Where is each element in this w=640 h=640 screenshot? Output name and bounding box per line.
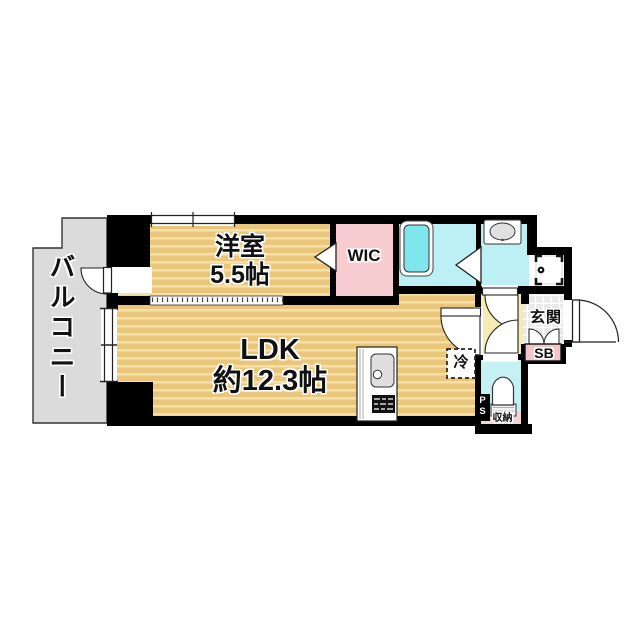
toilet [491,377,516,416]
ldk-label: LDK 約12.3帖 [140,335,400,397]
pipe-space-label: P S [475,396,490,417]
kitchen-stove [372,395,395,413]
ldk-name: LDK [240,334,300,366]
western-room-name: 洋室 [215,233,265,261]
shoe-box-label: SB [526,346,562,361]
sliding-partition [150,296,283,305]
window-ldk-balcony [100,308,118,382]
entrance-label: 玄関 [518,310,574,327]
pipe-space-letter-s: S [475,407,490,418]
washing-machine [536,256,562,284]
western-room-label: 洋室 5.5帖 [150,233,330,289]
wic-label: WIC [334,247,394,266]
washbasin [484,220,521,244]
refrigerator-label: 冷 [447,355,475,372]
bathtub [400,221,433,276]
pipe-space-letter-p: P [475,396,490,407]
western-room-size: 5.5帖 [210,261,270,289]
balcony-label: バルコニー [41,243,75,413]
floorplan-page: バルコニー 洋室 5.5帖 LDK 約12.3帖 WIC 玄関 SB 冷 収納 … [0,0,640,640]
ldk-size: 約12.3帖 [213,365,327,397]
window-western-room [151,212,235,227]
